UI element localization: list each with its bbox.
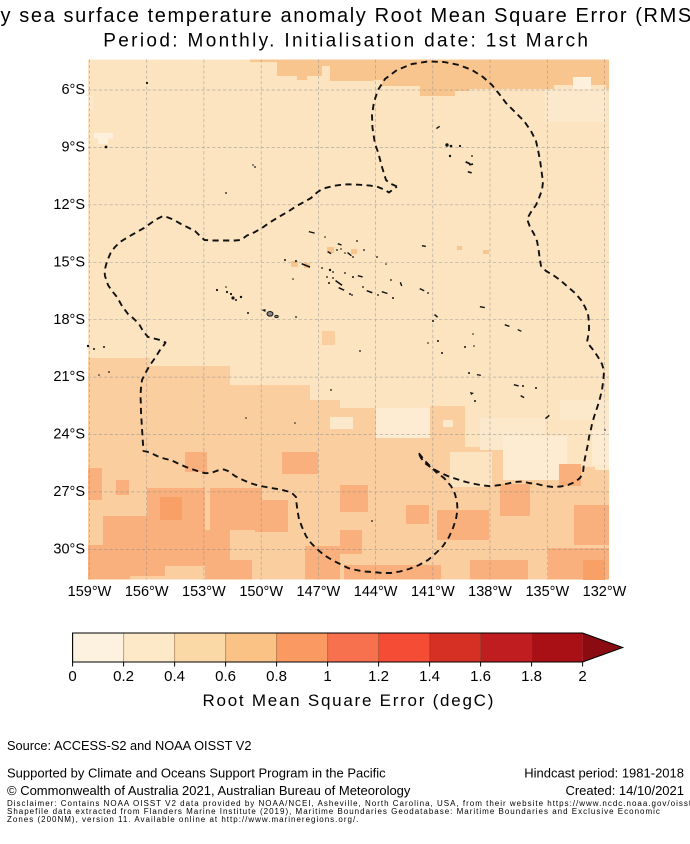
- svg-text:1.4: 1.4: [419, 668, 440, 685]
- svg-text:144°W: 144°W: [354, 584, 398, 600]
- svg-text:27°S: 27°S: [53, 484, 85, 500]
- svg-text:132°W: 132°W: [583, 584, 627, 600]
- svg-text:135°W: 135°W: [525, 584, 569, 600]
- svg-text:1.6: 1.6: [470, 668, 491, 685]
- svg-text:Hindcast period: 1981-2018: Hindcast period: 1981-2018: [524, 766, 684, 781]
- svg-text:Period: Monthly. Initialisatio: Period: Monthly. Initialisation date: 1s…: [103, 31, 590, 52]
- svg-text:2: 2: [578, 668, 586, 685]
- svg-text:0.6: 0.6: [215, 668, 236, 685]
- svg-text:Zones (200NM), version 11. Ava: Zones (200NM), version 11. Available onl…: [7, 815, 359, 824]
- svg-text:30°S: 30°S: [53, 542, 85, 558]
- svg-text:0.4: 0.4: [164, 668, 185, 685]
- svg-text:159°W: 159°W: [68, 584, 112, 600]
- svg-text:12°S: 12°S: [53, 197, 85, 213]
- svg-text:6°S: 6°S: [61, 82, 85, 98]
- svg-text:153°W: 153°W: [182, 584, 226, 600]
- svg-text:Created: 14/10/2021: Created: 14/10/2021: [565, 783, 684, 798]
- svg-text:Supported by Climate and Ocean: Supported by Climate and Oceans Support …: [7, 766, 386, 781]
- svg-text:© Commonwealth of Australia 20: © Commonwealth of Australia 2021, Austra…: [7, 783, 411, 798]
- svg-text:Monthly sea surface temperatur: Monthly sea surface temperature anomaly …: [0, 5, 690, 27]
- svg-text:156°W: 156°W: [125, 584, 169, 600]
- svg-text:1.2: 1.2: [368, 668, 389, 685]
- svg-text:21°S: 21°S: [53, 369, 85, 385]
- svg-text:Source: ACCESS-S2 and NOAA OIS: Source: ACCESS-S2 and NOAA OISST V2: [7, 738, 251, 753]
- svg-text:1.8: 1.8: [521, 668, 542, 685]
- svg-text:138°W: 138°W: [468, 584, 512, 600]
- svg-text:0.2: 0.2: [113, 668, 134, 685]
- svg-text:Root Mean Square Error (degC): Root Mean Square Error (degC): [202, 691, 495, 710]
- svg-text:1: 1: [323, 668, 331, 685]
- svg-text:150°W: 150°W: [239, 584, 283, 600]
- svg-text:0.8: 0.8: [266, 668, 287, 685]
- svg-text:147°W: 147°W: [297, 584, 341, 600]
- svg-text:141°W: 141°W: [411, 584, 455, 600]
- svg-text:15°S: 15°S: [53, 254, 85, 270]
- svg-text:18°S: 18°S: [53, 312, 85, 328]
- svg-text:0: 0: [68, 668, 76, 685]
- svg-text:9°S: 9°S: [61, 140, 85, 156]
- svg-text:24°S: 24°S: [53, 427, 85, 443]
